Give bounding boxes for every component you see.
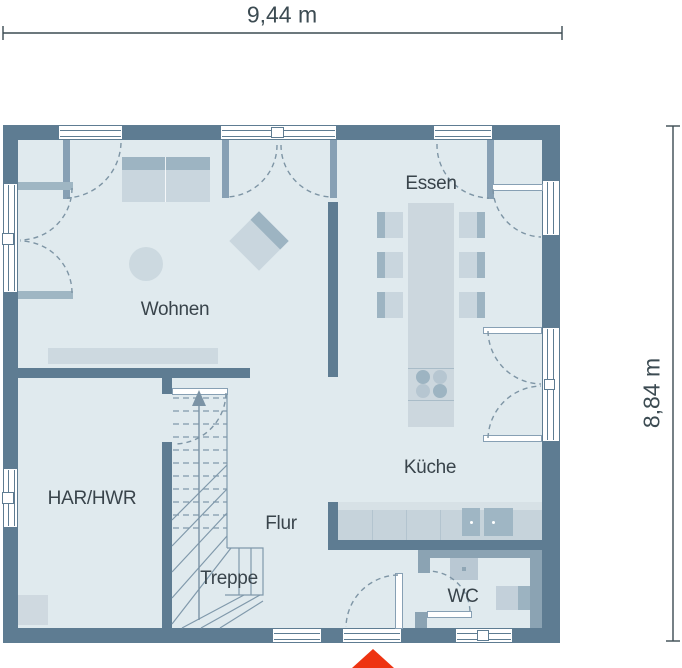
stair-treads-upper [173,398,227,528]
swing-arc-terrace-a [488,331,541,384]
room-label-essen: Essen [405,173,456,195]
room-label-wohnen: Wohnen [141,299,210,321]
entrance-marker [352,649,394,668]
swing-arc-entrance [346,575,398,627]
swing-arc-window-left-b [20,241,72,293]
swing-arc-window-center-b [281,145,332,197]
room-label-wc: WC [447,586,478,608]
swing-arc-terrace-b [488,386,541,438]
swing-arc-window-center-a [226,145,277,197]
swing-arc-window-top-left [67,143,121,198]
floor-plan: 9,44 m 8,84 m [0,0,682,668]
room-label-flur: Flur [265,513,297,535]
room-label-kueche: Küche [404,457,456,479]
door-swing-arcs [20,143,541,627]
room-label-treppe: Treppe [200,568,258,590]
dimension-right-line [666,126,680,641]
dimension-top-line [3,26,562,40]
room-label-har-hwr: HAR/HWR [48,488,137,510]
plan-linework [0,0,682,668]
stairs [172,390,263,628]
swing-arc-window-right [493,189,541,237]
swing-arc-window-left-a [20,188,72,240]
stair-treads-lower [172,394,263,628]
